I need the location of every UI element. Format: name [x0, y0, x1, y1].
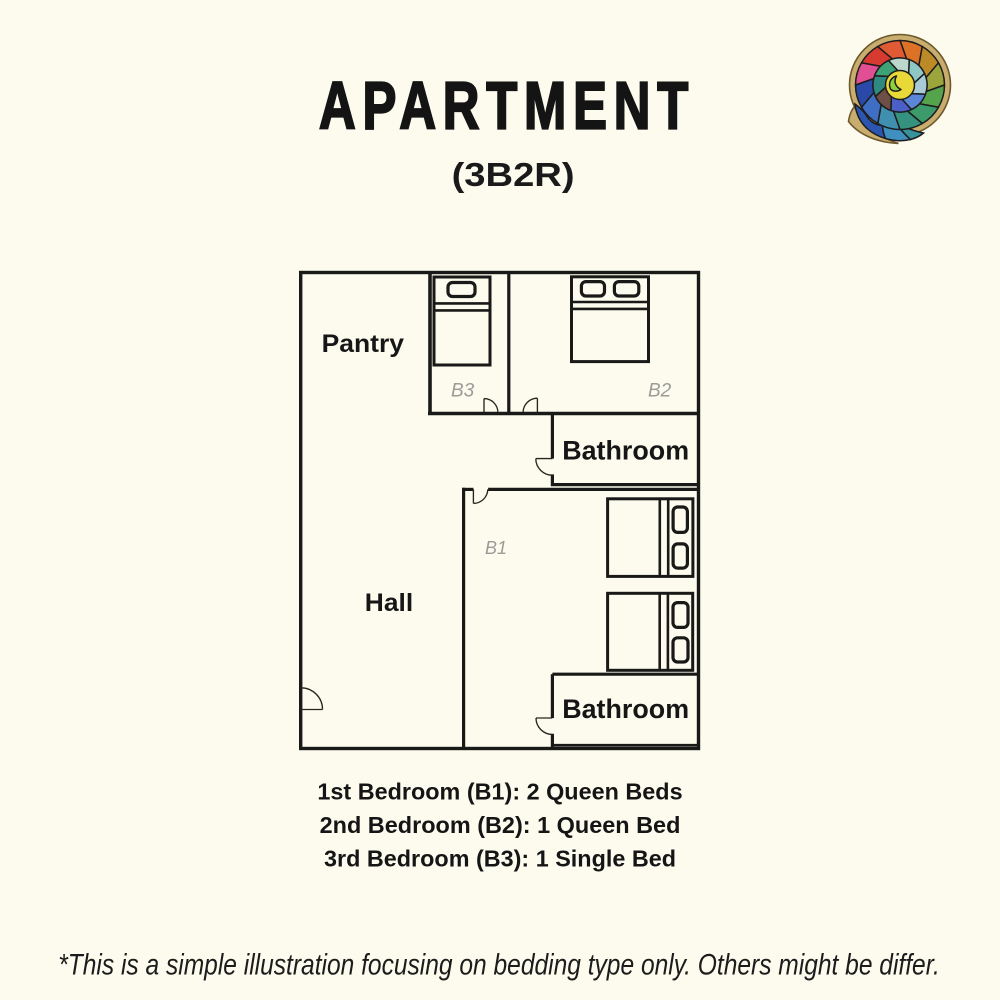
svg-text:2nd Bedroom (B2): 1 Queen Bed: 2nd Bedroom (B2): 1 Queen Bed	[320, 812, 681, 838]
svg-text:B1: B1	[485, 538, 507, 558]
svg-text:1st Bedroom (B1): 2 Queen Beds: 1st Bedroom (B1): 2 Queen Beds	[317, 778, 682, 804]
svg-text:*This is a simple illustration: *This is a simple illustration focusing …	[58, 949, 940, 982]
svg-text:Hall: Hall	[365, 589, 413, 617]
svg-text:B3: B3	[451, 380, 475, 401]
svg-text:3rd Bedroom (B3): 1 Single Bed: 3rd Bedroom (B3): 1 Single Bed	[324, 845, 676, 871]
svg-text:Bathroom: Bathroom	[562, 436, 689, 466]
svg-text:Pantry: Pantry	[322, 330, 404, 358]
svg-text:Bathroom: Bathroom	[562, 694, 689, 724]
svg-text:APARTMENT: APARTMENT	[319, 69, 695, 144]
svg-text:B2: B2	[648, 381, 672, 402]
svg-text:(3B2R): (3B2R)	[452, 156, 575, 193]
